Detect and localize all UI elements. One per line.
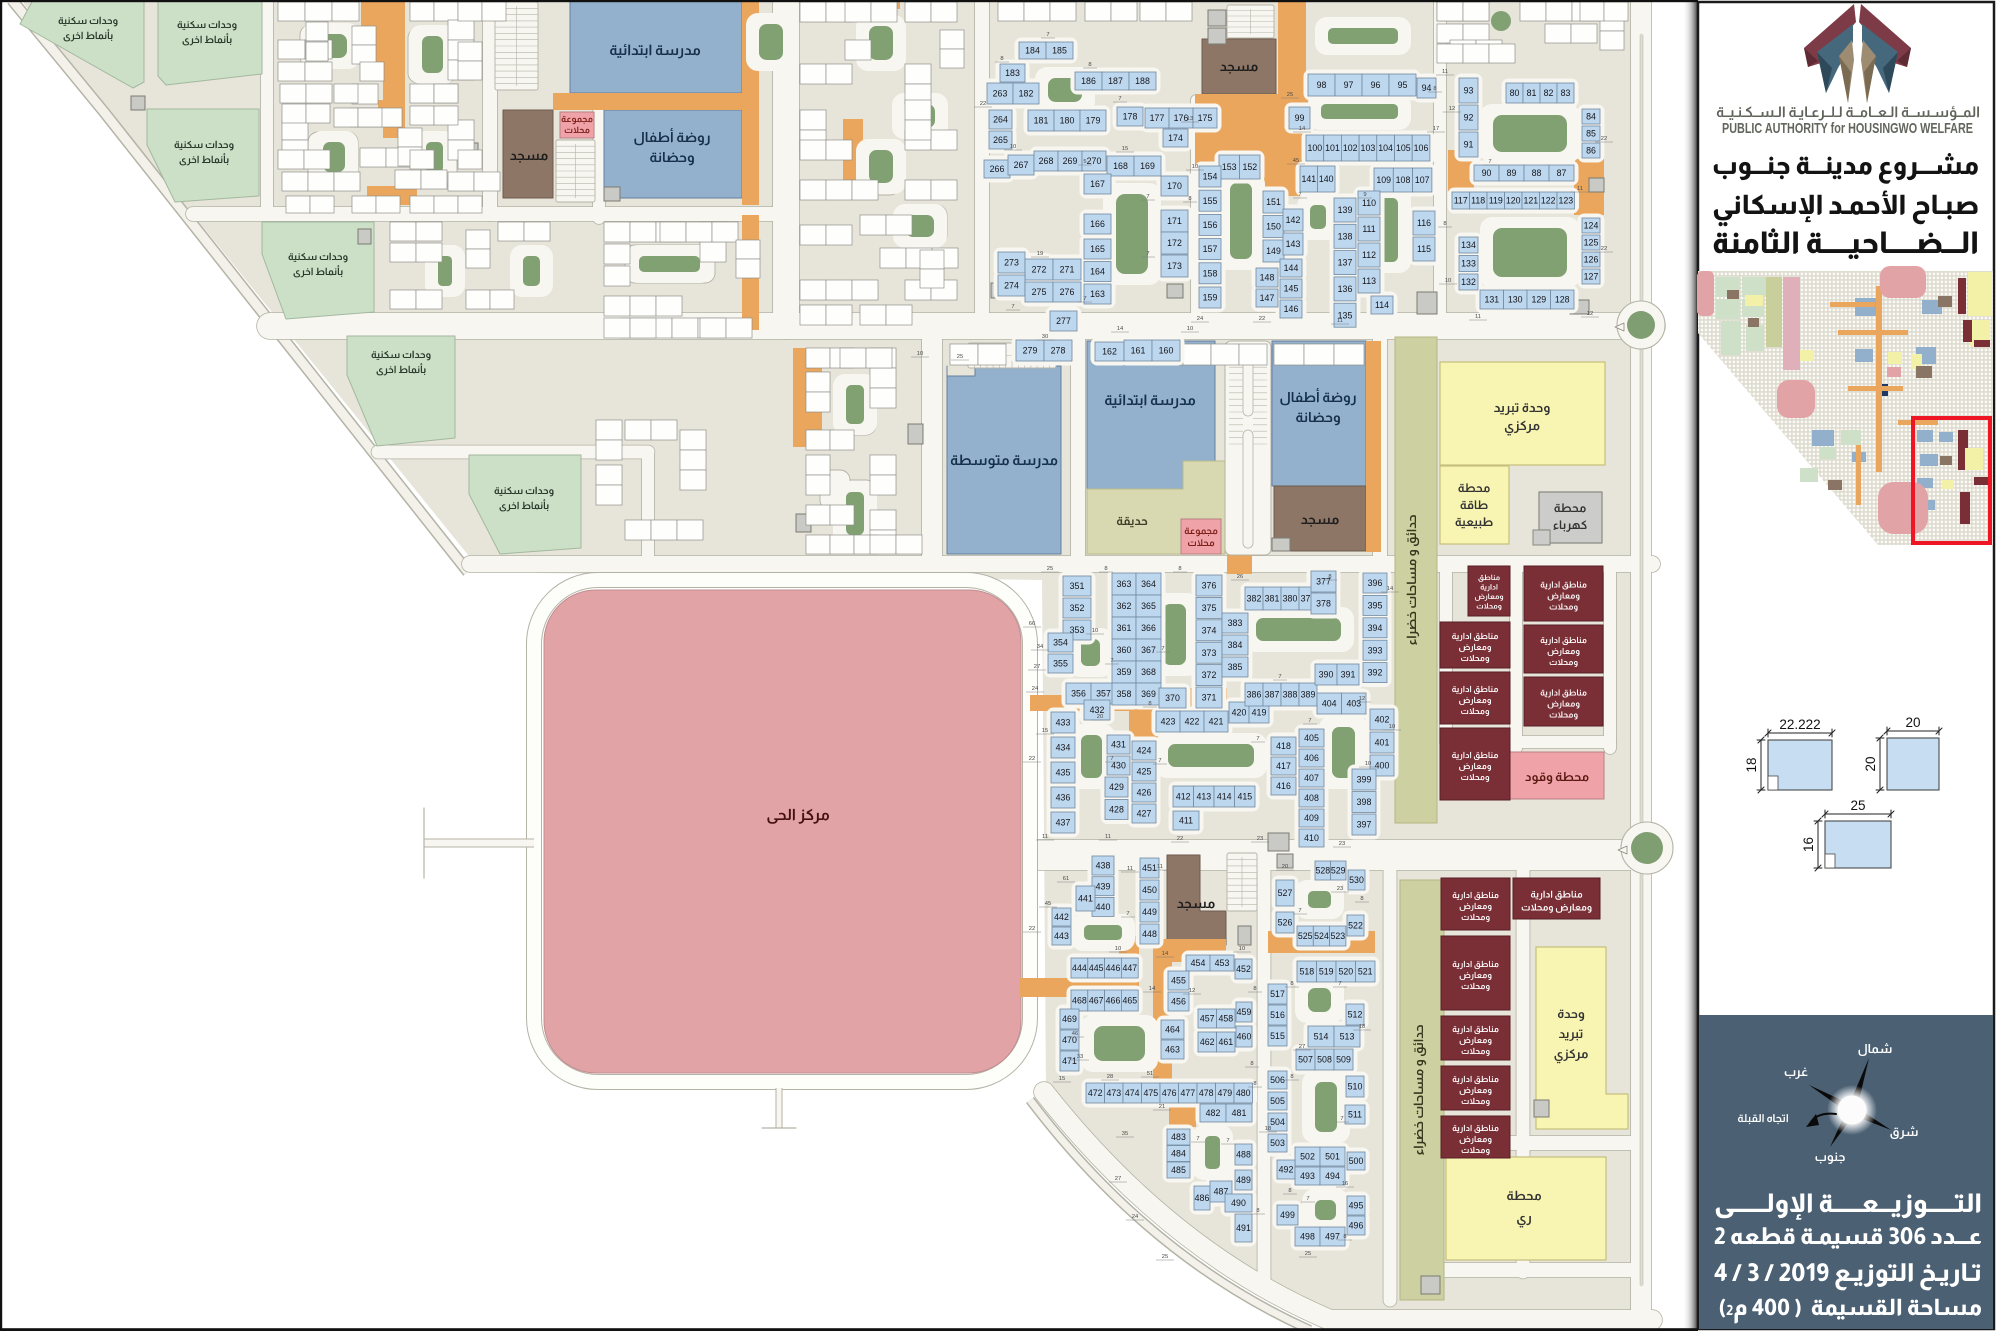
svg-text:528: 528: [1315, 866, 1330, 876]
svg-text:17: 17: [1433, 126, 1439, 132]
svg-text:453: 453: [1215, 958, 1230, 968]
svg-text:22: 22: [1029, 756, 1035, 762]
svg-text:151: 151: [1266, 197, 1281, 207]
svg-text:406: 406: [1304, 753, 1319, 763]
svg-text:129: 129: [1531, 295, 1546, 305]
svg-text:22: 22: [1601, 246, 1607, 252]
svg-text:106: 106: [1414, 143, 1429, 153]
svg-text:263: 263: [993, 89, 1008, 99]
svg-text:480: 480: [1236, 1088, 1251, 1098]
svg-text:499: 499: [1280, 1210, 1295, 1220]
svg-text:361: 361: [1117, 623, 1132, 633]
svg-text:22.222: 22.222: [1779, 717, 1820, 732]
svg-text:7: 7: [1298, 192, 1301, 198]
svg-text:445: 445: [1089, 963, 1104, 973]
svg-text:357: 357: [1096, 689, 1111, 699]
svg-text:168: 168: [1113, 161, 1128, 171]
svg-text:455: 455: [1171, 976, 1186, 986]
svg-text:273: 273: [1004, 258, 1019, 268]
svg-text:113: 113: [1362, 276, 1376, 286]
svg-text:464: 464: [1165, 1025, 1180, 1035]
svg-text:23: 23: [1337, 886, 1343, 892]
svg-text:11: 11: [1105, 834, 1111, 840]
svg-text:177: 177: [1150, 113, 1165, 123]
svg-text:414: 414: [1217, 792, 1232, 802]
svg-text:458: 458: [1218, 1014, 1233, 1024]
svg-text:155: 155: [1203, 196, 1218, 206]
svg-text:514: 514: [1314, 1032, 1329, 1042]
svg-text:115: 115: [1417, 244, 1431, 254]
svg-text:519: 519: [1319, 967, 1334, 977]
svg-text:419: 419: [1252, 708, 1267, 718]
svg-text:11: 11: [1042, 834, 1048, 840]
svg-text:486: 486: [1195, 1193, 1210, 1203]
svg-text:351: 351: [1070, 581, 1085, 591]
svg-text:10: 10: [1365, 761, 1371, 767]
svg-text:365: 365: [1141, 601, 1156, 611]
svg-text:473: 473: [1106, 1088, 1121, 1098]
svg-text:484: 484: [1171, 1149, 1186, 1159]
svg-text:500: 500: [1349, 1156, 1364, 1166]
svg-text:383: 383: [1228, 618, 1243, 628]
svg-text:15: 15: [1059, 1076, 1065, 1082]
svg-text:179: 179: [1086, 116, 1101, 126]
svg-text:28: 28: [1107, 1074, 1113, 1080]
svg-text:89: 89: [1507, 168, 1517, 178]
svg-text:24: 24: [1032, 686, 1039, 692]
svg-text:359: 359: [1117, 667, 1132, 677]
svg-text:398: 398: [1357, 797, 1372, 807]
svg-text:481: 481: [1232, 1108, 1247, 1118]
svg-text:474: 474: [1125, 1088, 1140, 1098]
svg-text:14: 14: [1299, 126, 1306, 132]
svg-text:7: 7: [1340, 1116, 1343, 1122]
svg-text:158: 158: [1203, 268, 1218, 278]
svg-text:478: 478: [1199, 1088, 1214, 1098]
svg-text:352: 352: [1070, 603, 1085, 613]
svg-text:102: 102: [1343, 143, 1358, 153]
svg-text:22: 22: [1177, 836, 1183, 842]
svg-text:356: 356: [1071, 689, 1086, 699]
svg-text:96: 96: [1371, 80, 1381, 90]
svg-text:407: 407: [1304, 773, 1319, 783]
svg-text:517: 517: [1270, 989, 1285, 999]
svg-text:93: 93: [1464, 86, 1474, 96]
svg-text:30: 30: [1042, 334, 1048, 340]
svg-text:509: 509: [1336, 1055, 1351, 1065]
svg-text:10: 10: [1092, 628, 1098, 634]
svg-text:18: 18: [1359, 1024, 1365, 1030]
svg-text:170: 170: [1167, 181, 1182, 191]
svg-text:8: 8: [1288, 1188, 1291, 1194]
svg-text:277: 277: [1056, 316, 1071, 326]
svg-text:12: 12: [1189, 988, 1195, 994]
svg-text:447: 447: [1122, 963, 1137, 973]
svg-text:11: 11: [1475, 314, 1481, 320]
svg-text:99: 99: [1295, 113, 1305, 123]
svg-text:381: 381: [1265, 594, 1280, 604]
svg-text:494: 494: [1325, 1171, 1340, 1181]
svg-text:25: 25: [1850, 798, 1865, 813]
svg-text:274: 274: [1004, 281, 1019, 291]
svg-text:114: 114: [1375, 300, 1389, 310]
svg-text:174: 174: [1168, 133, 1183, 143]
svg-text:448: 448: [1142, 929, 1157, 939]
svg-text:139: 139: [1338, 205, 1353, 215]
svg-text:477: 477: [1180, 1088, 1195, 1098]
svg-text:506: 506: [1270, 1075, 1285, 1085]
svg-text:369: 369: [1141, 689, 1156, 699]
svg-text:166: 166: [1090, 219, 1105, 229]
svg-text:372: 372: [1202, 670, 1217, 680]
svg-text:358: 358: [1117, 689, 1132, 699]
svg-text:187: 187: [1108, 76, 1123, 86]
svg-text:422: 422: [1185, 717, 1200, 727]
svg-text:22: 22: [1601, 136, 1607, 142]
svg-text:15: 15: [1122, 146, 1128, 152]
svg-text:152: 152: [1242, 162, 1257, 172]
svg-text:276: 276: [1060, 287, 1075, 297]
svg-text:472: 472: [1088, 1088, 1103, 1098]
svg-text:7: 7: [1158, 758, 1161, 764]
svg-text:429: 429: [1109, 782, 1124, 792]
svg-text:441: 441: [1078, 894, 1093, 904]
svg-text:373: 373: [1202, 648, 1217, 658]
svg-text:7: 7: [1308, 718, 1311, 724]
svg-text:18: 18: [1744, 757, 1759, 772]
svg-text:112: 112: [1362, 250, 1376, 260]
svg-text:149: 149: [1266, 246, 1281, 256]
svg-text:454: 454: [1191, 958, 1206, 968]
svg-text:440: 440: [1096, 902, 1111, 912]
svg-text:136: 136: [1338, 284, 1353, 294]
svg-text:475: 475: [1143, 1088, 1158, 1098]
svg-text:278: 278: [1051, 346, 1066, 356]
svg-text:434: 434: [1056, 743, 1071, 753]
svg-text:479: 479: [1217, 1088, 1232, 1098]
svg-text:8: 8: [1178, 566, 1181, 572]
svg-text:27: 27: [1299, 1044, 1305, 1050]
svg-text:489: 489: [1236, 1175, 1251, 1185]
svg-text:86: 86: [1586, 146, 1596, 156]
svg-text:443: 443: [1054, 931, 1069, 941]
svg-text:268: 268: [1039, 156, 1054, 166]
svg-text:11: 11: [1157, 864, 1163, 870]
svg-text:462: 462: [1200, 1037, 1215, 1047]
svg-text:11: 11: [1577, 186, 1583, 192]
svg-text:27: 27: [1034, 664, 1040, 670]
svg-text:95: 95: [1398, 80, 1408, 90]
svg-text:376: 376: [1202, 581, 1217, 591]
svg-text:439: 439: [1096, 881, 1111, 891]
svg-text:485: 485: [1171, 1165, 1186, 1175]
svg-text:408: 408: [1304, 793, 1319, 803]
svg-text:22: 22: [980, 101, 986, 107]
svg-text:461: 461: [1218, 1037, 1233, 1047]
svg-text:14: 14: [1387, 586, 1394, 592]
svg-text:456: 456: [1171, 997, 1186, 1007]
svg-text:7: 7: [1226, 1138, 1229, 1144]
svg-text:8: 8: [1253, 1081, 1256, 1087]
svg-text:380: 380: [1283, 594, 1298, 604]
svg-text:428: 428: [1109, 805, 1124, 815]
svg-text:124: 124: [1584, 221, 1599, 231]
svg-text:401: 401: [1375, 738, 1390, 748]
svg-text:371: 371: [1202, 693, 1217, 703]
svg-text:7: 7: [1083, 296, 1086, 302]
svg-text:172: 172: [1167, 238, 1182, 248]
svg-text:162: 162: [1102, 347, 1117, 357]
svg-text:483: 483: [1171, 1132, 1186, 1142]
svg-text:523: 523: [1330, 931, 1345, 941]
svg-text:10: 10: [917, 351, 923, 357]
svg-text:476: 476: [1162, 1088, 1177, 1098]
svg-text:13: 13: [1187, 116, 1193, 122]
svg-text:8: 8: [1343, 1234, 1346, 1240]
svg-text:387: 387: [1265, 690, 1280, 700]
svg-text:10: 10: [1192, 164, 1198, 170]
svg-text:492: 492: [1279, 1165, 1294, 1175]
svg-text:14: 14: [1117, 326, 1124, 332]
svg-text:121: 121: [1523, 196, 1538, 206]
svg-text:7: 7: [1011, 304, 1014, 310]
svg-text:10: 10: [1389, 724, 1395, 730]
svg-text:15: 15: [1042, 728, 1048, 734]
svg-text:392: 392: [1368, 668, 1383, 678]
svg-text:12: 12: [1587, 311, 1593, 317]
svg-text:507: 507: [1298, 1055, 1313, 1065]
svg-text:10: 10: [1010, 144, 1016, 150]
svg-text:147: 147: [1260, 293, 1275, 303]
svg-text:417: 417: [1276, 761, 1291, 771]
svg-text:466: 466: [1106, 996, 1121, 1006]
svg-text:25: 25: [1047, 566, 1053, 572]
svg-text:444: 444: [1072, 963, 1087, 973]
svg-text:504: 504: [1270, 1117, 1285, 1127]
svg-text:80: 80: [1510, 88, 1520, 98]
svg-text:10: 10: [1115, 946, 1121, 952]
svg-text:267: 267: [1014, 160, 1029, 170]
svg-text:126: 126: [1584, 255, 1599, 265]
svg-text:98: 98: [1317, 80, 1327, 90]
svg-text:85: 85: [1586, 129, 1596, 139]
svg-text:148: 148: [1260, 273, 1275, 283]
svg-text:7: 7: [1146, 251, 1149, 257]
svg-text:143: 143: [1286, 239, 1301, 249]
svg-text:45: 45: [1045, 901, 1051, 907]
svg-text:510: 510: [1348, 1082, 1363, 1092]
svg-text:7: 7: [1110, 658, 1113, 664]
svg-text:154: 154: [1203, 172, 1218, 182]
svg-text:181: 181: [1034, 116, 1049, 126]
svg-text:463: 463: [1165, 1045, 1180, 1055]
svg-text:138: 138: [1338, 231, 1353, 241]
svg-text:469: 469: [1062, 1014, 1077, 1024]
svg-text:184: 184: [1025, 46, 1040, 56]
svg-text:5: 5: [1083, 159, 1086, 165]
svg-text:66: 66: [1029, 621, 1035, 627]
svg-text:375: 375: [1202, 603, 1217, 613]
svg-text:123: 123: [1558, 196, 1573, 206]
svg-text:8: 8: [1290, 1074, 1293, 1080]
svg-text:20: 20: [1905, 715, 1920, 730]
svg-text:526: 526: [1278, 918, 1293, 928]
svg-text:7: 7: [1298, 908, 1301, 914]
svg-text:25: 25: [1287, 92, 1293, 98]
svg-text:11: 11: [1442, 69, 1448, 75]
svg-text:103: 103: [1361, 143, 1376, 153]
svg-text:491: 491: [1236, 1223, 1251, 1233]
svg-text:156: 156: [1203, 220, 1218, 230]
svg-text:451: 451: [1142, 863, 1157, 873]
svg-text:107: 107: [1415, 175, 1430, 185]
svg-text:265: 265: [993, 135, 1008, 145]
svg-text:488: 488: [1236, 1150, 1251, 1160]
svg-text:409: 409: [1304, 813, 1319, 823]
svg-text:130: 130: [1508, 295, 1523, 305]
svg-text:163: 163: [1090, 289, 1105, 299]
svg-text:20: 20: [1097, 714, 1103, 720]
svg-text:501: 501: [1325, 1152, 1340, 1162]
svg-text:117: 117: [1454, 196, 1468, 206]
svg-text:364: 364: [1141, 579, 1156, 589]
svg-text:82: 82: [1544, 88, 1554, 98]
svg-text:153: 153: [1222, 162, 1237, 172]
svg-text:279: 279: [1023, 346, 1038, 356]
svg-text:165: 165: [1090, 244, 1105, 254]
svg-text:8: 8: [1088, 62, 1091, 68]
svg-text:7: 7: [1110, 756, 1113, 762]
svg-text:157: 157: [1203, 244, 1218, 254]
svg-text:513: 513: [1340, 1032, 1355, 1042]
svg-text:131: 131: [1484, 295, 1499, 305]
svg-text:88: 88: [1532, 168, 1542, 178]
svg-text:363: 363: [1117, 579, 1132, 589]
svg-text:24: 24: [1132, 1214, 1139, 1220]
svg-text:7: 7: [1126, 911, 1129, 917]
svg-text:125: 125: [1584, 238, 1599, 248]
svg-text:118: 118: [1471, 196, 1485, 206]
svg-text:515: 515: [1270, 1031, 1285, 1041]
svg-text:9: 9: [1363, 192, 1366, 198]
svg-text:10: 10: [1239, 946, 1245, 952]
svg-text:497: 497: [1325, 1232, 1340, 1242]
svg-text:521: 521: [1358, 967, 1373, 977]
svg-text:8: 8: [1188, 196, 1191, 202]
svg-text:16: 16: [1801, 837, 1816, 852]
svg-text:87: 87: [1557, 168, 1567, 178]
svg-text:92: 92: [1464, 113, 1474, 123]
svg-text:134: 134: [1461, 240, 1476, 250]
svg-text:97: 97: [1344, 80, 1354, 90]
svg-text:502: 502: [1300, 1152, 1315, 1162]
svg-text:51: 51: [1147, 1071, 1153, 1077]
svg-text:354: 354: [1053, 638, 1068, 648]
svg-text:188: 188: [1135, 76, 1150, 86]
svg-text:133: 133: [1461, 259, 1476, 269]
svg-text:384: 384: [1228, 640, 1243, 650]
svg-text:110: 110: [1362, 198, 1376, 208]
svg-text:437: 437: [1056, 818, 1071, 828]
svg-text:412: 412: [1176, 792, 1191, 802]
svg-text:183: 183: [1005, 68, 1020, 78]
svg-text:8: 8: [1250, 1061, 1253, 1067]
svg-text:518: 518: [1299, 967, 1314, 977]
svg-text:423: 423: [1161, 717, 1176, 727]
svg-text:100: 100: [1307, 143, 1322, 153]
svg-text:25: 25: [1305, 1251, 1311, 1257]
svg-text:374: 374: [1202, 625, 1217, 635]
svg-text:8: 8: [1148, 701, 1151, 707]
svg-text:34: 34: [1037, 644, 1044, 650]
svg-text:433: 433: [1056, 718, 1071, 728]
svg-text:12: 12: [1359, 696, 1365, 702]
svg-text:140: 140: [1319, 174, 1334, 184]
svg-text:7: 7: [1046, 32, 1049, 38]
svg-text:122: 122: [1541, 196, 1556, 206]
svg-text:496: 496: [1349, 1221, 1364, 1231]
svg-text:27: 27: [1115, 1176, 1121, 1182]
svg-text:524: 524: [1314, 931, 1329, 941]
svg-text:404: 404: [1322, 699, 1337, 709]
svg-text:109: 109: [1376, 175, 1391, 185]
svg-text:8: 8: [1253, 986, 1256, 992]
svg-text:25: 25: [957, 354, 963, 360]
svg-text:512: 512: [1348, 1010, 1363, 1020]
svg-text:116: 116: [1417, 218, 1431, 228]
svg-text:128: 128: [1555, 295, 1570, 305]
svg-text:137: 137: [1338, 258, 1353, 268]
svg-text:160: 160: [1159, 346, 1174, 356]
svg-text:90: 90: [1482, 168, 1492, 178]
svg-text:10: 10: [1187, 326, 1193, 332]
svg-text:446: 446: [1106, 963, 1121, 973]
svg-text:169: 169: [1140, 161, 1155, 171]
svg-text:468: 468: [1072, 996, 1087, 1006]
svg-text:7: 7: [1161, 646, 1164, 652]
svg-text:511: 511: [1348, 1110, 1362, 1120]
svg-text:465: 465: [1122, 996, 1137, 1006]
svg-text:405: 405: [1304, 733, 1319, 743]
svg-text:20: 20: [1282, 864, 1288, 870]
svg-text:16: 16: [1342, 1181, 1348, 1187]
svg-text:390: 390: [1319, 670, 1334, 680]
svg-text:24: 24: [1197, 316, 1204, 322]
svg-text:435: 435: [1056, 768, 1071, 778]
svg-text:26: 26: [1237, 574, 1243, 580]
svg-text:142: 142: [1286, 215, 1301, 225]
svg-text:7: 7: [1196, 1136, 1199, 1142]
svg-text:14: 14: [1149, 986, 1156, 992]
svg-text:45: 45: [1293, 158, 1299, 164]
svg-text:10: 10: [1445, 278, 1451, 284]
svg-text:120: 120: [1506, 196, 1521, 206]
svg-text:362: 362: [1117, 601, 1132, 611]
svg-text:266: 266: [990, 164, 1005, 174]
svg-text:8: 8: [1290, 981, 1293, 987]
svg-text:271: 271: [1060, 265, 1075, 275]
svg-text:46: 46: [1072, 1031, 1078, 1037]
svg-text:360: 360: [1117, 645, 1132, 655]
svg-text:460: 460: [1237, 1032, 1252, 1042]
svg-text:161: 161: [1131, 346, 1146, 356]
svg-text:529: 529: [1331, 866, 1346, 876]
svg-text:264: 264: [993, 115, 1008, 125]
svg-text:413: 413: [1196, 792, 1211, 802]
svg-text:144: 144: [1284, 263, 1299, 273]
svg-text:378: 378: [1316, 599, 1331, 609]
svg-text:146: 146: [1284, 304, 1299, 314]
